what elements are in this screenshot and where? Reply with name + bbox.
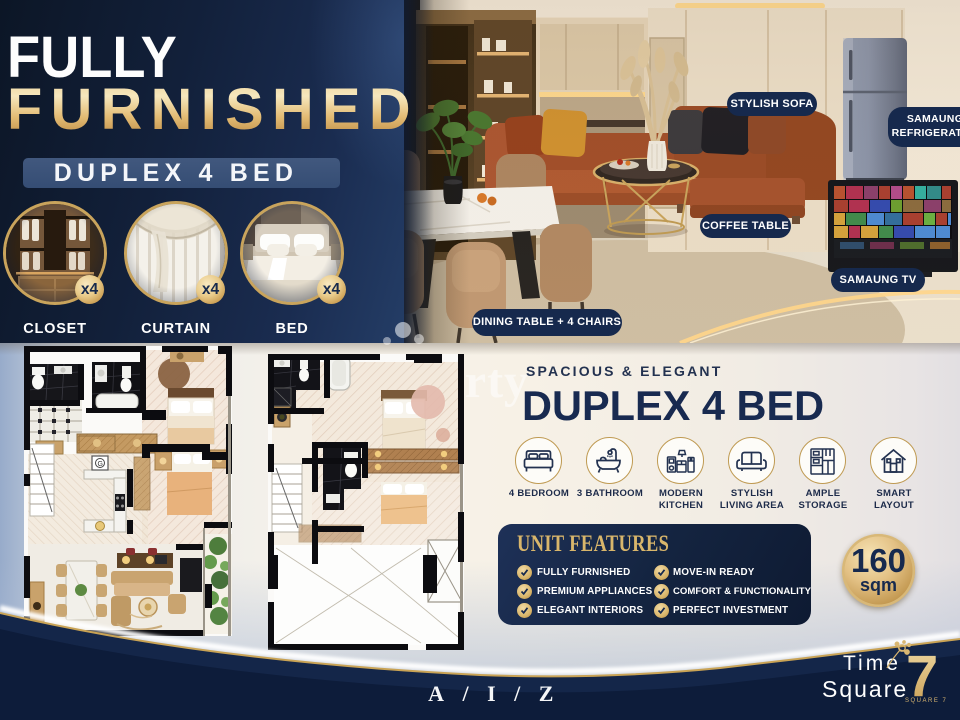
svg-text:G: G [98,461,103,468]
